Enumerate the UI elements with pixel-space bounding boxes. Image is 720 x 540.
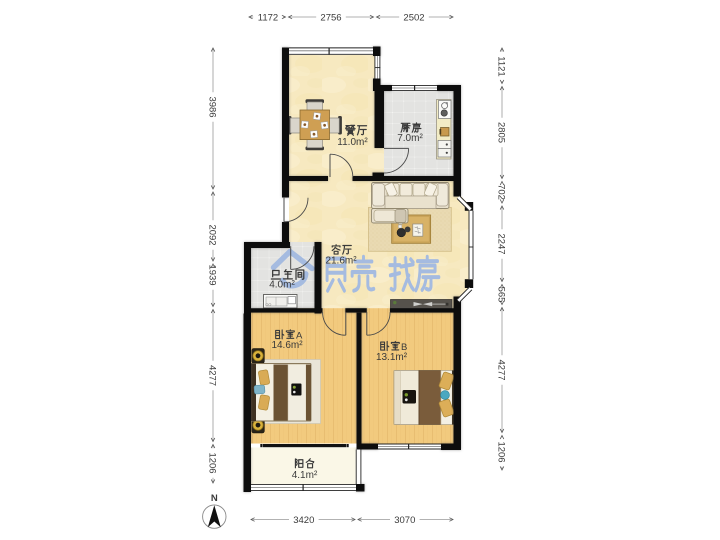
svg-text:13.1m²: 13.1m²	[376, 352, 408, 363]
svg-text:1121: 1121	[496, 56, 507, 76]
svg-text:702: 702	[496, 184, 507, 200]
svg-text:2247: 2247	[496, 233, 507, 254]
svg-text:3070: 3070	[394, 515, 415, 526]
svg-text:4277: 4277	[207, 365, 218, 386]
svg-text:4.0m²: 4.0m²	[269, 280, 295, 291]
svg-text:4.1m²: 4.1m²	[292, 470, 318, 481]
svg-text:2502: 2502	[403, 12, 424, 23]
svg-text:2756: 2756	[320, 12, 341, 23]
svg-text:14.6m²: 14.6m²	[271, 340, 303, 351]
svg-text:11.0m²: 11.0m²	[337, 137, 368, 148]
svg-text:1939: 1939	[207, 264, 218, 285]
svg-text:2092: 2092	[207, 224, 218, 245]
svg-text:1206: 1206	[207, 452, 218, 473]
svg-text:4277: 4277	[496, 359, 507, 380]
svg-text:2805: 2805	[496, 122, 507, 143]
svg-text:21.6m²: 21.6m²	[325, 256, 357, 267]
svg-text:N: N	[211, 493, 218, 504]
svg-text:3986: 3986	[207, 96, 218, 117]
svg-text:1206: 1206	[496, 441, 507, 462]
svg-text:1172: 1172	[258, 12, 278, 23]
svg-text:565: 565	[496, 287, 507, 303]
svg-text:7.0m²: 7.0m²	[397, 133, 423, 144]
svg-text:3420: 3420	[293, 515, 314, 526]
